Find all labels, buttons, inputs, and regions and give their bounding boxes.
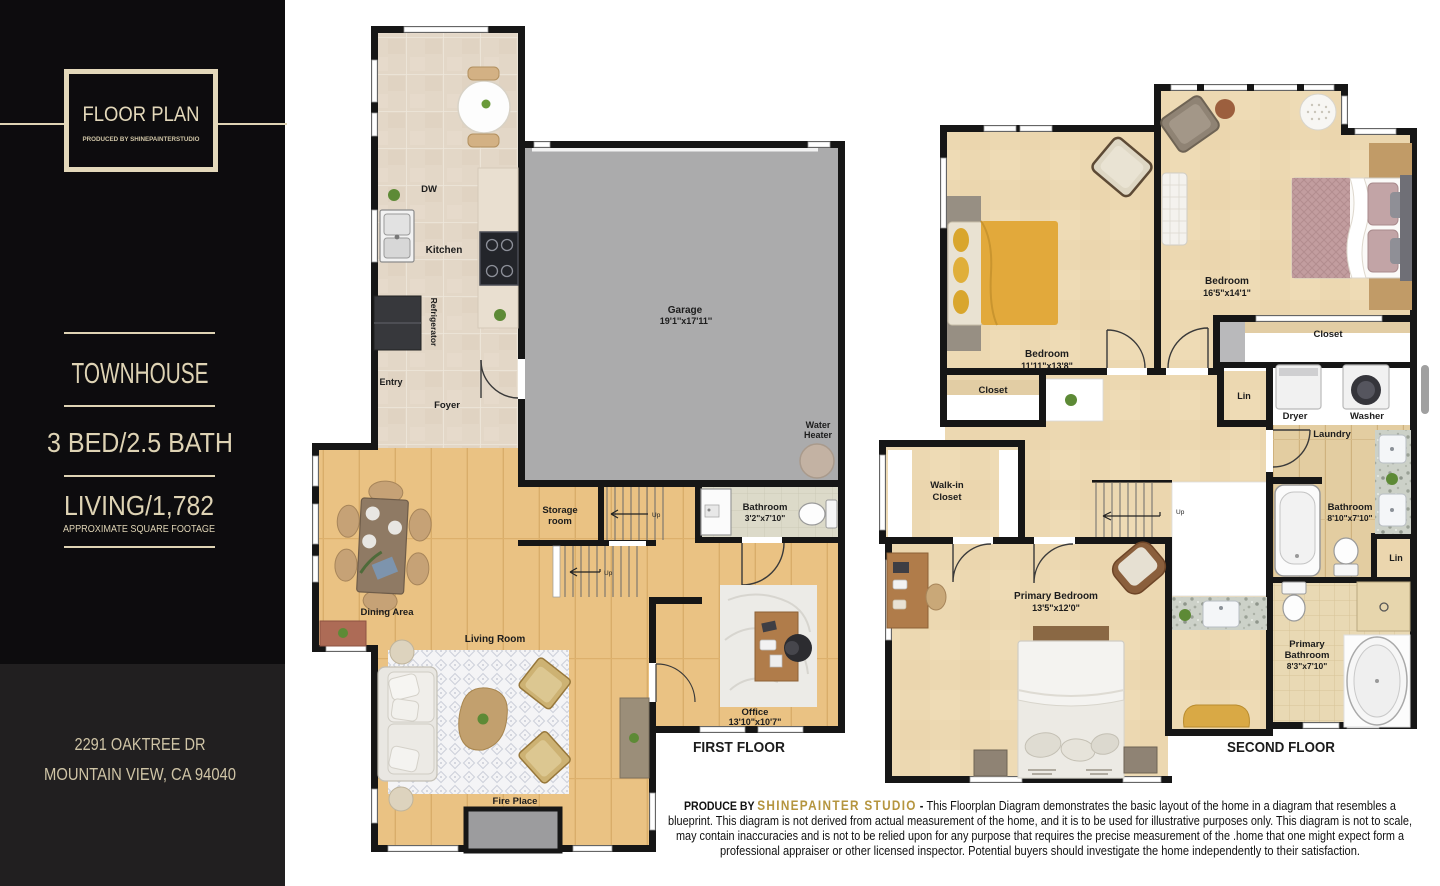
- svg-text:13'10"x10'7": 13'10"x10'7": [729, 717, 782, 727]
- svg-text:Dining Area: Dining Area: [361, 607, 415, 618]
- svg-text:Bathroom: Bathroom: [1328, 502, 1373, 513]
- svg-text:Foyer: Foyer: [434, 400, 460, 411]
- svg-text:Up: Up: [604, 570, 613, 577]
- svg-text:Primary Bedroom: Primary Bedroom: [1014, 591, 1098, 602]
- svg-text:Living Room: Living Room: [465, 634, 526, 645]
- svg-text:Dryer: Dryer: [1283, 411, 1308, 422]
- svg-text:16'5"x14'1": 16'5"x14'1": [1203, 288, 1251, 298]
- svg-text:Bedroom: Bedroom: [1025, 349, 1069, 360]
- svg-text:TOWNHOUSE: TOWNHOUSE: [72, 358, 209, 390]
- svg-text:Bathroom: Bathroom: [743, 502, 788, 513]
- svg-text:may contain inaccuracies and i: may contain inaccuracies and is not to b…: [676, 829, 1404, 843]
- svg-text:Up: Up: [652, 512, 661, 519]
- svg-text:19'1''x17'11'': 19'1''x17'11'': [660, 316, 712, 326]
- svg-text:13'5"x12'0": 13'5"x12'0": [1032, 603, 1080, 613]
- svg-text:APPROXIMATE SQUARE FOOTAGE: APPROXIMATE SQUARE FOOTAGE: [63, 524, 215, 535]
- svg-text:Garage: Garage: [668, 305, 703, 316]
- svg-text:Storage: Storage: [542, 505, 577, 516]
- svg-text:3'2"x7'10": 3'2"x7'10": [745, 513, 785, 523]
- svg-text:Closet: Closet: [932, 492, 962, 503]
- svg-text:Heater: Heater: [804, 430, 833, 440]
- svg-text:FIRST FLOOR: FIRST FLOOR: [693, 739, 785, 756]
- svg-text:Fire Place: Fire Place: [493, 796, 538, 807]
- svg-text:Entry: Entry: [379, 377, 402, 387]
- svg-text:Bedroom: Bedroom: [1205, 276, 1249, 287]
- svg-text:SECOND FLOOR: SECOND FLOOR: [1227, 739, 1335, 756]
- svg-text:8'3"x7'10": 8'3"x7'10": [1287, 661, 1327, 671]
- svg-text:room: room: [548, 516, 572, 527]
- svg-text:Closet: Closet: [1313, 329, 1343, 340]
- svg-text:LIVING/1,782: LIVING/1,782: [64, 490, 214, 521]
- svg-text:Primary: Primary: [1289, 639, 1325, 650]
- svg-text:FLOOR PLAN: FLOOR PLAN: [83, 103, 200, 126]
- svg-text:Refrigerator: Refrigerator: [429, 298, 439, 347]
- svg-text:Laundry: Laundry: [1313, 429, 1351, 440]
- svg-text:Lin: Lin: [1389, 553, 1403, 563]
- svg-text:Closet: Closet: [978, 385, 1008, 396]
- svg-text:Lin: Lin: [1237, 391, 1251, 401]
- svg-text:Up: Up: [1176, 509, 1185, 516]
- svg-text:Kitchen: Kitchen: [426, 245, 463, 256]
- svg-text:3 BED/2.5 BATH: 3 BED/2.5 BATH: [47, 427, 233, 458]
- svg-text:Water: Water: [806, 420, 831, 430]
- svg-text:2291 OAKTREE DR: 2291 OAKTREE DR: [75, 734, 206, 754]
- svg-text:MOUNTAIN VIEW, CA 94040: MOUNTAIN VIEW, CA 94040: [44, 764, 236, 784]
- svg-text:Washer: Washer: [1350, 411, 1384, 422]
- svg-text:11'11"x13'8": 11'11"x13'8": [1021, 361, 1073, 371]
- svg-text:PRODUCED BY SHINEPAINTERSTUDIO: PRODUCED BY SHINEPAINTERSTUDIO: [83, 136, 200, 143]
- svg-text:professional appraiser or othe: professional appraiser or other licensed…: [720, 844, 1360, 858]
- svg-text:8'10"x7'10": 8'10"x7'10": [1327, 513, 1372, 523]
- svg-text:Walk-in: Walk-in: [930, 480, 964, 491]
- svg-text:Bathroom: Bathroom: [1285, 650, 1330, 661]
- svg-text:DW: DW: [421, 184, 437, 195]
- svg-text:blueprint. This diagram is not: blueprint. This diagram is not derived f…: [668, 814, 1412, 828]
- svg-text:PRODUCE BY SHINEPAINTER STUDIO: PRODUCE BY SHINEPAINTER STUDIO - This Fl…: [684, 798, 1396, 813]
